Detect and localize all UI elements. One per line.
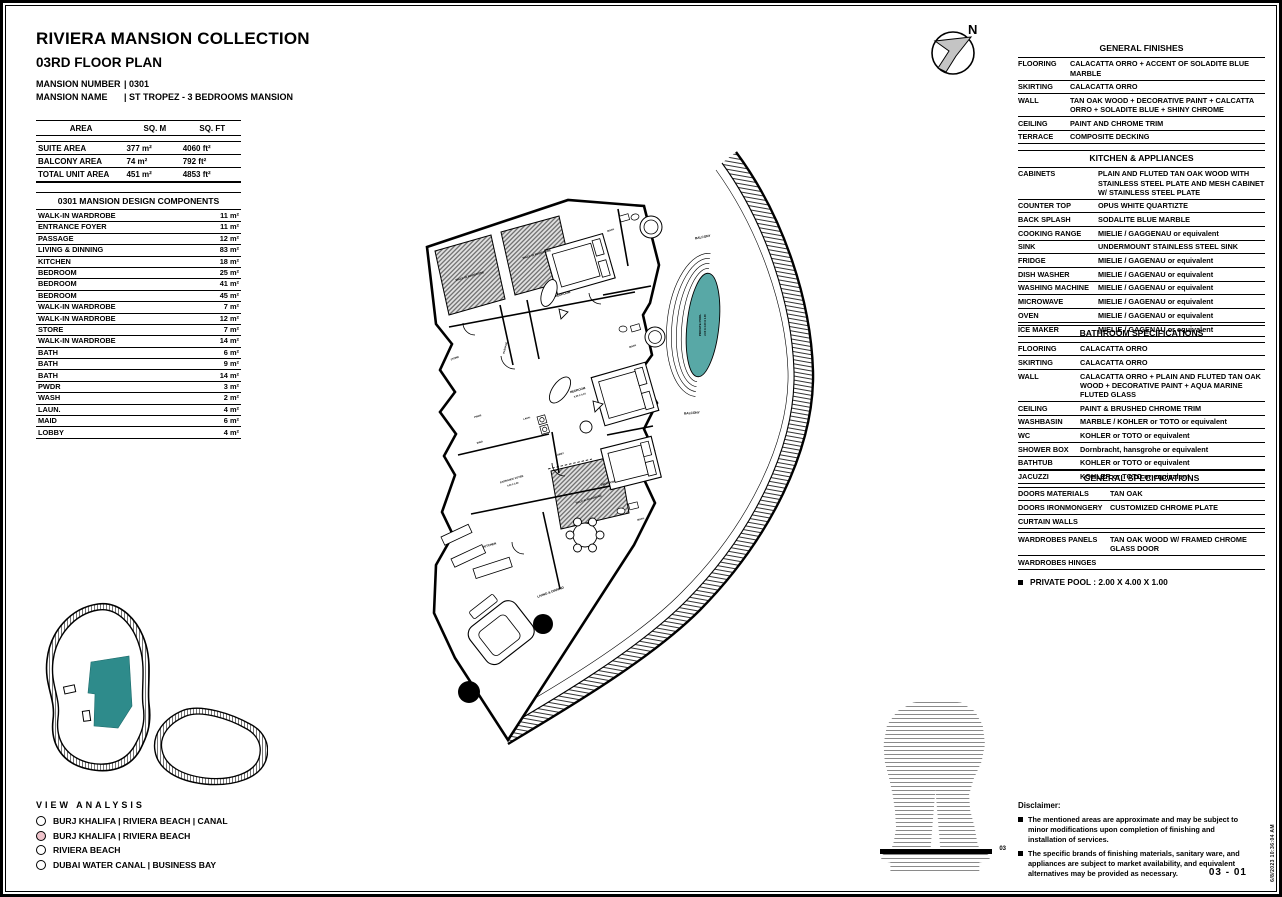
general-specs-title: GENERAL SPECIFICATIONS: [1018, 470, 1265, 488]
component-name: BEDROOM: [38, 292, 77, 300]
component-name: PWDR: [38, 383, 61, 391]
spec-label: COUNTER TOP: [1018, 201, 1098, 210]
component-area: 41 m²: [220, 280, 239, 288]
component-name: KITCHEN: [38, 258, 71, 266]
component-name: LAUN.: [38, 406, 61, 414]
component-area: 4 m²: [224, 429, 239, 437]
spec-label: COOKING RANGE: [1018, 229, 1098, 238]
view-option-1: BURJ KHALIFA | RIVIERA BEACH | CANAL: [36, 816, 228, 826]
component-row: LAUN. 4 m²: [36, 405, 241, 416]
spec-row: SKIRTING CALACATTA ORRO: [1018, 81, 1265, 95]
area-sqm: 74 m²: [126, 157, 182, 166]
component-row: BATH 6 m²: [36, 348, 241, 359]
area-sqm: 451 m²: [126, 170, 182, 179]
tower-floor-highlight: [880, 849, 992, 854]
component-area: 3 m²: [224, 383, 239, 391]
spec-row: CEILING PAINT & BRUSHED CHROME TRIM: [1018, 402, 1265, 416]
area-col-header: AREA: [36, 124, 126, 133]
component-area: 2 m²: [224, 394, 239, 402]
spec-value: MIELIE / GAGENAU or equivalent: [1098, 256, 1265, 265]
keyplan-core-2: [82, 710, 90, 721]
component-row: WALK-IN WARDROBE 14 m²: [36, 336, 241, 347]
component-name: WALK-IN WARDROBE: [38, 303, 116, 311]
spec-value: MIELIE / GAGENAU or equivalent: [1098, 297, 1265, 306]
tower-elevation: 03: [879, 699, 993, 873]
spec-row: DISH WASHER MIELIE / GAGENAU or equivale…: [1018, 268, 1265, 282]
component-area: 7 m²: [224, 303, 239, 311]
column: [458, 681, 480, 703]
kitchen-appliances-body: CABINETS PLAIN AND FLUTED TAN OAK WOOD W…: [1018, 168, 1265, 337]
spec-value: CUSTOMIZED CHROME PLATE: [1110, 503, 1265, 512]
mansion-number-value: | 0301: [124, 79, 149, 89]
component-area: 12 m²: [220, 235, 239, 243]
component-row: BATH 14 m²: [36, 370, 241, 381]
component-row: LIVING & DINNING 83 m²: [36, 245, 241, 256]
spec-label: FLOORING: [1018, 59, 1070, 77]
component-row: BEDROOM 41 m²: [36, 279, 241, 290]
spec-value: SODALITE BLUE MARBLE: [1098, 215, 1265, 224]
component-row: WALK-IN WARDROBE 7 m²: [36, 302, 241, 313]
bathroom-specs-section: BATHROOM SPECIFICATIONS FLOORING CALACAT…: [1018, 325, 1265, 484]
spec-value: TAN OAK WOOD W/ FRAMED CHROME GLASS DOOR: [1110, 535, 1265, 553]
spec-row: WARDROBES PANELS TAN OAK WOOD W/ FRAMED …: [1018, 533, 1265, 556]
radio-icon: [36, 816, 46, 826]
area-table-header: AREA SQ. M SQ. FT: [36, 120, 241, 136]
spec-row: TERRACE COMPOSITE DECKING: [1018, 131, 1265, 145]
component-row: WASH 2 m²: [36, 393, 241, 404]
spec-value: KOHLER or TOTO or equivalent: [1080, 431, 1265, 440]
radio-icon: [36, 845, 46, 855]
design-components-body: WALK-IN WARDROBE 11 m² ENTRANCE FOYER 11…: [36, 211, 241, 439]
sqm-col-header: SQ. M: [126, 124, 183, 133]
print-timestamp: 6/8/2023 10:36:04 AM: [1270, 824, 1276, 882]
component-name: WALK-IN WARDROBE: [38, 315, 116, 323]
spec-row: FRIDGE MIELIE / GAGENAU or equivalent: [1018, 254, 1265, 268]
spec-row: BACK SPLASH SODALITE BLUE MARBLE: [1018, 213, 1265, 227]
page-title: 03RD FLOOR PLAN: [36, 55, 366, 70]
spec-label: FLOORING: [1018, 344, 1080, 353]
disclaimer-title: Disclaimer:: [1018, 800, 1252, 811]
bathroom-specs-body: FLOORING CALACATTA ORRO SKIRTING CALACAT…: [1018, 343, 1265, 484]
component-row: WALK-IN WARDROBE 12 m²: [36, 314, 241, 325]
component-row: MAID 6 m²: [36, 416, 241, 427]
component-area: 6 m²: [224, 349, 239, 357]
spec-label: CURTAIN WALLS: [1018, 517, 1110, 526]
column: [533, 614, 553, 634]
general-finishes-title: GENERAL FINISHES: [1018, 41, 1265, 58]
general-finishes-body: FLOORING CALACATTA ORRO + ACCENT OF SOLA…: [1018, 58, 1265, 145]
spec-row: OVEN MIELIE / GAGENAU or equivalent: [1018, 309, 1265, 323]
tower-floor-label: 03: [999, 846, 1006, 852]
spec-label: DISH WASHER: [1018, 270, 1098, 279]
spec-row: WALL CALACATTA ORRO + PLAIN AND FLUTED T…: [1018, 370, 1265, 402]
component-area: 4 m²: [224, 406, 239, 414]
spec-row: SKIRTING CALACATTA ORRO: [1018, 356, 1265, 370]
mansion-name-row: MANSION NAME | ST TROPEZ - 3 BEDROOMS MA…: [36, 92, 366, 102]
view-analysis-title: VIEW ANALYSIS: [36, 800, 228, 810]
component-row: KITCHEN 18 m²: [36, 257, 241, 268]
design-components-title: 0301 MANSION DESIGN COMPONENTS: [36, 192, 241, 210]
view-analysis: VIEW ANALYSIS BURJ KHALIFA | RIVIERA BEA…: [36, 800, 228, 874]
spec-value: PLAIN AND FLUTED TAN OAK WOOD WITH STAIN…: [1098, 169, 1265, 196]
spec-label: DOORS IRONMONGERY: [1018, 503, 1110, 512]
spec-label: OVEN: [1018, 311, 1098, 320]
spec-label: BATHTUB: [1018, 458, 1080, 467]
spec-label: DOORS MATERIALS: [1018, 489, 1110, 498]
spec-row: WASHBASIN MARBLE / KOHLER or TOTO or equ…: [1018, 416, 1265, 430]
collection-title: RIVIERA MANSION COLLECTION: [36, 29, 366, 49]
view-option-2: BURJ KHALIFA | RIVIERA BEACH: [36, 831, 228, 841]
svg-text:2.00 X 4.00 X 1.00: 2.00 X 4.00 X 1.00: [703, 314, 707, 336]
component-row: WALK-IN WARDROBE 11 m²: [36, 211, 241, 222]
component-area: 14 m²: [220, 337, 239, 345]
spec-value: MIELIE / GAGENAU or equivalent: [1098, 283, 1265, 292]
compass-icon: N: [927, 21, 985, 81]
component-name: LOBBY: [38, 429, 64, 437]
spec-value: CALACATTA ORRO + PLAIN AND FLUTED TAN OA…: [1080, 372, 1265, 399]
spec-row: CABINETS PLAIN AND FLUTED TAN OAK WOOD W…: [1018, 168, 1265, 200]
spec-label: CEILING: [1018, 404, 1080, 413]
spec-label: TERRACE: [1018, 132, 1070, 141]
spec-label: SINK: [1018, 242, 1098, 251]
general-specs-body: DOORS MATERIALS TAN OAK DOORS IRONMONGER…: [1018, 488, 1265, 570]
disclaimer-item: The mentioned areas are approximate and …: [1018, 815, 1252, 846]
component-row: BEDROOM 25 m²: [36, 268, 241, 279]
spec-label: WARDROBES PANELS: [1018, 535, 1110, 553]
spec-value: UNDERMOUNT STAINLESS STEEL SINK: [1098, 242, 1265, 251]
view-option-4: DUBAI WATER CANAL | BUSINESS BAY: [36, 860, 228, 870]
spec-label: SKIRTING: [1018, 358, 1080, 367]
component-name: PASSAGE: [38, 235, 74, 243]
spec-label: BACK SPLASH: [1018, 215, 1098, 224]
component-name: BATH: [38, 360, 58, 368]
compass-north-label: N: [968, 22, 977, 37]
radio-icon-selected: [36, 831, 46, 841]
spec-row: CEILING PAINT AND CHROME TRIM: [1018, 117, 1265, 131]
spec-row: COUNTER TOP OPUS WHITE QUARTIZTE: [1018, 200, 1265, 214]
spec-value: CALACATTA ORRO: [1080, 344, 1265, 353]
component-name: STORE: [38, 326, 63, 334]
spec-row: FLOORING CALACATTA ORRO: [1018, 343, 1265, 357]
component-name: WALK-IN WARDROBE: [38, 212, 116, 220]
spec-label: SKIRTING: [1018, 82, 1070, 91]
spec-value: KOHLER or TOTO or equivalent: [1080, 458, 1265, 467]
component-name: MAID: [38, 417, 57, 425]
spec-row: FLOORING CALACATTA ORRO + ACCENT OF SOLA…: [1018, 58, 1265, 81]
spec-row: WASHING MACHINE MIELIE / GAGENAU or equi…: [1018, 282, 1265, 296]
spec-value: CALACATTA ORRO + ACCENT OF SOLADITE BLUE…: [1070, 59, 1265, 77]
component-area: 83 m²: [220, 246, 239, 254]
radio-icon: [36, 860, 46, 870]
component-area: 11 m²: [220, 212, 239, 220]
component-row: PASSAGE 12 m²: [36, 234, 241, 245]
spec-value: OPUS WHITE QUARTIZTE: [1098, 201, 1265, 210]
area-name: SUITE AREA: [38, 144, 126, 153]
spec-label: WALL: [1018, 96, 1070, 114]
spec-row: CURTAIN WALLS: [1018, 515, 1265, 529]
private-pool-note-text: PRIVATE POOL : 2.00 X 4.00 X 1.00: [1030, 577, 1168, 587]
spec-value: MIELIE / GAGENAU or equivalent: [1098, 270, 1265, 279]
component-name: BEDROOM: [38, 280, 77, 288]
component-name: BEDROOM: [38, 269, 77, 277]
area-sqft: 792 ft²: [183, 157, 239, 166]
component-name: LIVING & DINNING: [38, 246, 103, 254]
spec-row: WC KOHLER or TOTO or equivalent: [1018, 429, 1265, 443]
key-plan-map: [36, 598, 268, 796]
spec-label: WARDROBES HINGES: [1018, 558, 1110, 567]
component-row: LOBBY 4 m²: [36, 427, 241, 438]
room-label-balcony: BALCONY: [684, 410, 701, 415]
square-bullet-icon: [1018, 817, 1023, 822]
area-row: SUITE AREA 377 m² 4060 ft²: [36, 142, 241, 155]
component-area: 9 m²: [224, 360, 239, 368]
title-block: RIVIERA MANSION COLLECTION 03RD FLOOR PL…: [36, 29, 366, 102]
component-area: 6 m²: [224, 417, 239, 425]
view-option-label: RIVIERA BEACH: [53, 845, 120, 855]
private-pool: [660, 250, 727, 399]
bathroom-specs-title: BATHROOM SPECIFICATIONS: [1018, 325, 1265, 343]
kitchen-appliances-title: KITCHEN & APPLIANCES: [1018, 150, 1265, 168]
mansion-number-row: MANSION NUMBER | 0301: [36, 79, 366, 89]
spec-label: WALL: [1018, 372, 1080, 399]
floor-plan: PRIVATE POOL 2.00 X 4.00 X 1.00: [398, 138, 848, 758]
sheet-number: 03 - 01: [1209, 867, 1247, 878]
area-table-body: SUITE AREA 377 m² 4060 ft² BALCONY AREA …: [36, 141, 241, 183]
spec-value: [1110, 558, 1265, 567]
area-sqft: 4060 ft²: [183, 144, 239, 153]
component-area: 18 m²: [220, 258, 239, 266]
spec-row: COOKING RANGE MIELIE / GAGGENAU or equiv…: [1018, 227, 1265, 241]
spec-value: CALACATTA ORRO: [1070, 82, 1265, 91]
spec-row: DOORS MATERIALS TAN OAK: [1018, 488, 1265, 502]
square-bullet-icon: [1018, 580, 1023, 585]
spec-row: BATHTUB KOHLER or TOTO or equivalent: [1018, 457, 1265, 471]
kitchen-appliances-section: KITCHEN & APPLIANCES CABINETS PLAIN AND …: [1018, 150, 1265, 337]
spec-value: PAINT & BRUSHED CHROME TRIM: [1080, 404, 1265, 413]
mansion-name-value: | ST TROPEZ - 3 BEDROOMS MANSION: [124, 92, 293, 102]
area-name: BALCONY AREA: [38, 157, 126, 166]
area-table: AREA SQ. M SQ. FT SUITE AREA 377 m² 4060…: [36, 120, 241, 183]
mansion-number-label: MANSION NUMBER: [36, 79, 124, 89]
component-area: 7 m²: [224, 326, 239, 334]
spec-value: MIELIE / GAGENAU or equivalent: [1098, 311, 1265, 320]
spec-value: COMPOSITE DECKING: [1070, 132, 1265, 141]
component-row: ENTRANCE FOYER 11 m²: [36, 222, 241, 233]
square-bullet-icon: [1018, 851, 1023, 856]
spec-row: WARDROBES HINGES: [1018, 556, 1265, 570]
spec-row: DOORS IRONMONGERY CUSTOMIZED CHROME PLAT…: [1018, 501, 1265, 515]
component-area: 45 m²: [220, 292, 239, 300]
spec-value: CALACATTA ORRO: [1080, 358, 1265, 367]
area-sqft: 4853 ft²: [183, 170, 239, 179]
view-option-label: BURJ KHALIFA | RIVIERA BEACH | CANAL: [53, 816, 228, 826]
spec-label: MICROWAVE: [1018, 297, 1098, 306]
component-name: BATH: [38, 372, 58, 380]
view-option-label: BURJ KHALIFA | RIVIERA BEACH: [53, 831, 190, 841]
spec-label: CABINETS: [1018, 169, 1098, 196]
component-name: ENTRANCE FOYER: [38, 223, 107, 231]
drawing-sheet: RIVIERA MANSION COLLECTION 03RD FLOOR PL…: [0, 0, 1282, 897]
spec-row: SHOWER BOX Dornbracht, hansgrohe or equi…: [1018, 443, 1265, 457]
area-row: TOTAL UNIT AREA 451 m² 4853 ft²: [36, 168, 241, 181]
spec-label: WC: [1018, 431, 1080, 440]
spec-label: WASHBASIN: [1018, 417, 1080, 426]
spec-value: [1110, 517, 1265, 526]
room-label-balcony: BALCONY: [695, 234, 712, 241]
component-row: STORE 7 m²: [36, 325, 241, 336]
area-row: BALCONY AREA 74 m² 792 ft²: [36, 155, 241, 168]
spec-value: TAN OAK WOOD + DECORATIVE PAINT + CALCAT…: [1070, 96, 1265, 114]
general-specs-section: GENERAL SPECIFICATIONS DOORS MATERIALS T…: [1018, 470, 1265, 570]
spec-value: MARBLE / KOHLER or TOTO or equivalent: [1080, 417, 1265, 426]
component-area: 11 m²: [220, 223, 239, 231]
component-area: 14 m²: [220, 372, 239, 380]
component-row: BEDROOM 45 m²: [36, 291, 241, 302]
private-pool-note: PRIVATE POOL : 2.00 X 4.00 X 1.00: [1018, 577, 1168, 587]
area-name: TOTAL UNIT AREA: [38, 170, 126, 179]
spec-value: Dornbracht, hansgrohe or equivalent: [1080, 445, 1265, 454]
component-area: 25 m²: [220, 269, 239, 277]
spec-value: TAN OAK: [1110, 489, 1265, 498]
svg-text:PRIVATE POOL: PRIVATE POOL: [698, 314, 702, 337]
mansion-name-label: MANSION NAME: [36, 92, 124, 102]
spec-row: WALL TAN OAK WOOD + DECORATIVE PAINT + C…: [1018, 94, 1265, 117]
spec-label: SHOWER BOX: [1018, 445, 1080, 454]
component-area: 12 m²: [220, 315, 239, 323]
component-row: BATH 9 m²: [36, 359, 241, 370]
spec-value: PAINT AND CHROME TRIM: [1070, 119, 1265, 128]
component-row: PWDR 3 m²: [36, 382, 241, 393]
component-name: WALK-IN WARDROBE: [38, 337, 116, 345]
view-option-label: DUBAI WATER CANAL | BUSINESS BAY: [53, 860, 216, 870]
area-sqm: 377 m²: [126, 144, 182, 153]
spec-label: FRIDGE: [1018, 256, 1098, 265]
spec-row: SINK UNDERMOUNT STAINLESS STEEL SINK: [1018, 241, 1265, 255]
design-components-table: 0301 MANSION DESIGN COMPONENTS WALK-IN W…: [36, 192, 241, 439]
spec-row: MICROWAVE MIELIE / GAGENAU or equivalent: [1018, 295, 1265, 309]
component-name: BATH: [38, 349, 58, 357]
disclaimer-text: The mentioned areas are approximate and …: [1028, 815, 1252, 846]
component-name: WASH: [38, 394, 60, 402]
view-option-3: RIVIERA BEACH: [36, 845, 228, 855]
general-finishes-section: GENERAL FINISHES FLOORING CALACATTA ORRO…: [1018, 41, 1265, 144]
spec-label: WASHING MACHINE: [1018, 283, 1098, 292]
spec-label: CEILING: [1018, 119, 1070, 128]
sqft-col-header: SQ. FT: [184, 124, 241, 133]
spec-value: MIELIE / GAGGENAU or equivalent: [1098, 229, 1265, 238]
